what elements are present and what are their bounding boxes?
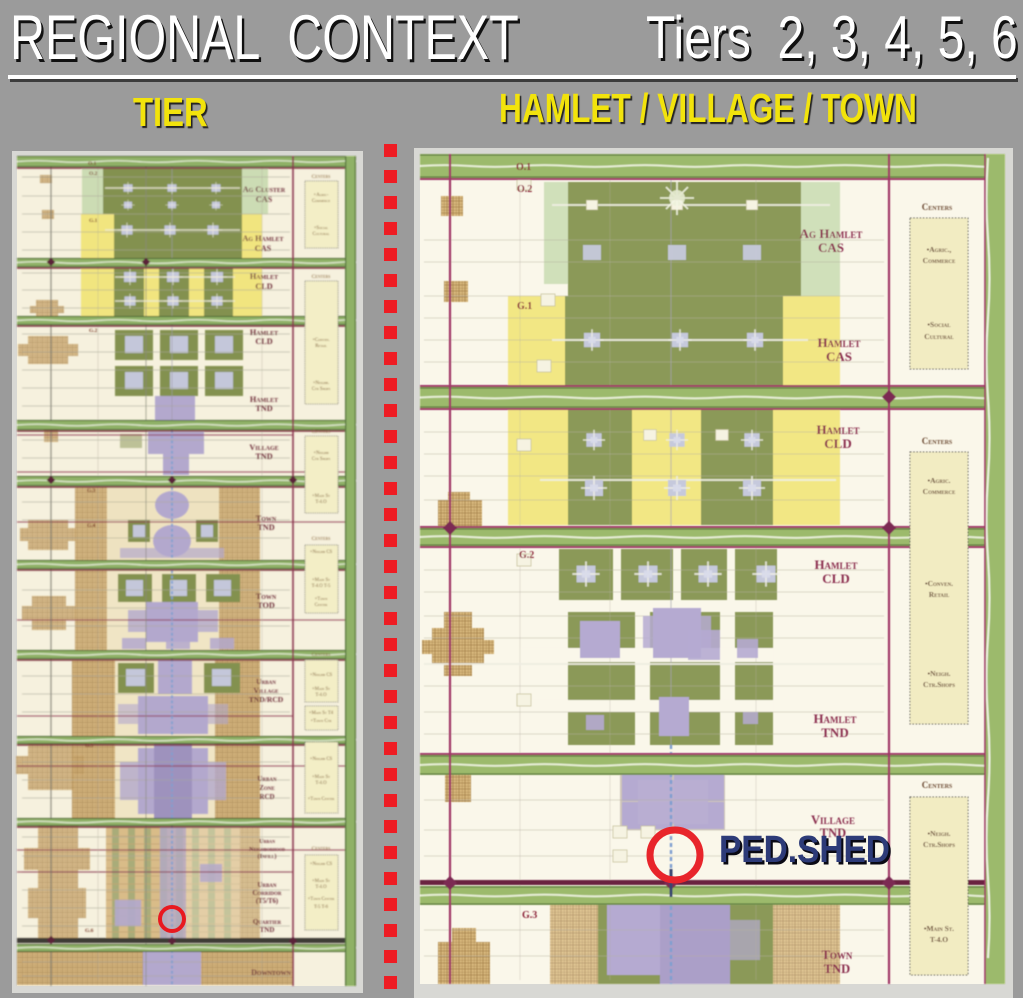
svg-text:Centers: Centers [922,202,953,212]
svg-text:G.6: G.6 [85,928,94,934]
svg-text:CLD: CLD [255,337,272,346]
svg-text:Centers: Centers [312,274,331,280]
svg-text:Ctr Shops: Ctr Shops [312,387,331,392]
svg-text:Ag Hamlet: Ag Hamlet [800,226,863,241]
svg-text:Quartier: Quartier [253,918,282,926]
svg-text:•Neigh.: •Neigh. [928,829,951,838]
svg-text:+Agric-: +Agric- [314,193,329,198]
svg-text:Hamlet: Hamlet [250,328,278,337]
svg-text:Ctr.Shops: Ctr.Shops [923,840,955,849]
svg-text:Corridor: Corridor [252,890,281,897]
svg-text:+Main St: +Main St [312,775,330,780]
svg-text:Centers: Centers [312,174,331,180]
svg-text:+Social: +Social [314,226,329,231]
svg-text:+Town Center: +Town Center [308,797,335,802]
svg-text:Hamlet: Hamlet [250,395,278,404]
svg-text:+Conven.: +Conven. [312,338,330,343]
svg-text:TND: TND [257,523,274,532]
svg-text:Retail: Retail [315,344,327,349]
svg-text:TND: TND [821,725,848,740]
svg-text:Commerce: Commerce [923,487,956,496]
svg-text:+Town Center: +Town Center [308,897,335,902]
svg-text:T-4.O: T-4.O [315,500,327,505]
svg-text:CLD: CLD [822,571,849,586]
svg-text:+Neighb CS: +Neighb CS [310,757,333,762]
svg-text:Urban: Urban [257,775,277,783]
svg-text:TND: TND [824,962,850,976]
svg-text:Cultural: Cultural [313,232,330,237]
svg-text:Commerce: Commerce [312,199,331,204]
svg-text:Urban: Urban [259,838,275,845]
svg-text:•Agric.: •Agric. [928,476,951,485]
svg-text:Village: Village [249,443,278,452]
svg-text:G.1: G.1 [517,301,532,312]
svg-text:•Conven.: •Conven. [925,579,953,588]
svg-text:+Main St T4: +Main St T4 [309,711,334,716]
svg-text:CAS: CAS [818,240,844,255]
svg-text:Hamlet: Hamlet [813,711,856,726]
svg-text:G.1: G.1 [89,218,98,224]
svg-text:O.2: O.2 [89,171,98,177]
svg-text:+Town: +Town [315,597,329,602]
svg-text:+Main St: +Main St [312,879,330,884]
svg-text:•Neigh.: •Neigh. [928,669,951,678]
svg-text:Urban: Urban [257,882,276,889]
svg-text:Centers: Centers [312,536,331,542]
svg-text:Hamlet: Hamlet [816,422,859,437]
svg-text:Town: Town [822,948,853,962]
svg-text:G.2: G.2 [89,328,98,334]
svg-text:TND: TND [255,404,272,413]
svg-text:+Neighb CS: +Neighb CS [310,673,333,678]
svg-text:+Neighb CS: +Neighb CS [310,862,333,867]
svg-text:Town: Town [256,514,277,523]
svg-text:TND: TND [260,926,275,934]
svg-text:Village: Village [254,686,280,695]
svg-text:+Neighb CS: +Neighb CS [310,550,333,555]
svg-text:CAS: CAS [255,244,272,253]
svg-text:Hamlet: Hamlet [817,335,860,350]
svg-text:•Social: •Social [927,320,951,329]
svg-text:Cultural: Cultural [924,332,954,341]
svg-text:G.2: G.2 [519,550,534,561]
svg-text:(T5/T6): (T5/T6) [256,898,278,905]
svg-text:RCD: RCD [259,793,274,801]
svg-text:+Main St: +Main St [312,494,330,499]
svg-text:•Agric.,: •Agric., [927,245,952,254]
svg-text:CLD: CLD [255,282,272,291]
svg-text:Ctr.Shops: Ctr.Shops [923,680,955,689]
svg-text:Ag Hamlet: Ag Hamlet [243,234,284,243]
svg-text:O.1: O.1 [516,162,531,173]
svg-text:T-4.O: T-4.O [315,693,327,698]
svg-text:Retail: Retail [929,590,950,599]
svg-text:+Neighb.: +Neighb. [313,381,330,386]
svg-text:+Main St: +Main St [312,687,330,692]
svg-text:Ag Cluster: Ag Cluster [243,185,286,194]
svg-text:Commerce: Commerce [923,256,956,265]
svg-text:Ctr Shops: Ctr Shops [312,457,331,462]
svg-text:T-4.O: T-4.O [315,781,327,786]
svg-text:CLD: CLD [824,436,851,451]
svg-text:G.5: G.5 [85,743,94,749]
svg-text:Town: Town [256,592,277,601]
svg-text:(Infill): (Infill) [258,853,277,860]
svg-text:Centers: Centers [312,846,331,852]
svg-text:T-4.O T-5: T-4.O T-5 [312,584,331,589]
svg-text:TOD: TOD [257,601,275,610]
svg-text:G.4: G.4 [87,523,96,529]
svg-text:Urban: Urban [256,677,276,686]
svg-text:Neighborhood: Neighborhood [249,846,285,853]
svg-text:O.2: O.2 [517,184,532,195]
svg-text:Hamlet: Hamlet [250,272,278,281]
svg-text:T-4.O: T-4.O [315,885,327,890]
svg-text:+Main St: +Main St [312,578,330,583]
svg-text:TND/RCD: TND/RCD [249,695,284,704]
svg-text:Centers: Centers [312,652,331,658]
svg-text:T-5 T-6: T-5 T-6 [314,905,329,910]
svg-text:Centers: Centers [922,436,953,446]
svg-text:Centers: Centers [312,429,331,435]
svg-text:G.3: G.3 [522,910,537,921]
svg-text:•Main St.: •Main St. [924,924,954,933]
svg-text:+Town Ctr: +Town Ctr [310,719,331,724]
svg-text:Hamlet: Hamlet [814,557,857,572]
svg-text:Centers: Centers [922,780,953,790]
svg-text:TND: TND [255,452,272,461]
svg-text:T-4.O: T-4.O [930,935,948,944]
svg-text:G.3: G.3 [87,488,96,494]
svg-text:+Neighb: +Neighb [313,451,328,456]
svg-text:Center: Center [315,603,328,608]
svg-text:Village: Village [811,813,855,827]
svg-text:Downtown: Downtown [251,968,291,977]
svg-text:O.1: O.1 [88,161,97,167]
svg-text:CAS: CAS [256,195,273,204]
svg-text:CAS: CAS [826,349,852,364]
svg-text:Zone: Zone [259,784,275,792]
